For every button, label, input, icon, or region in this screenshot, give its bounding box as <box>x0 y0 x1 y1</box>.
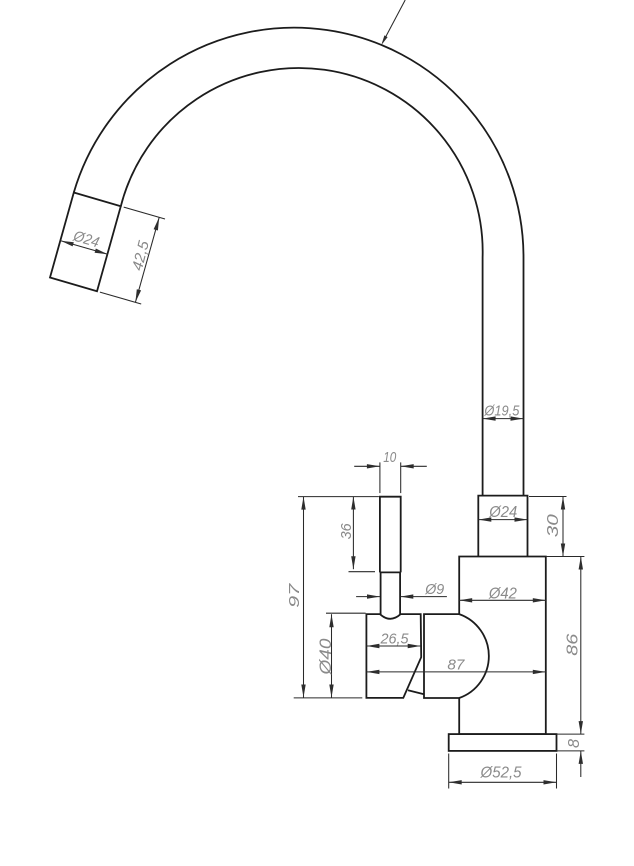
svg-text:Ø40: Ø40 <box>316 638 335 676</box>
svg-text:36: 36 <box>338 523 355 540</box>
svg-text:Ø42: Ø42 <box>488 585 517 602</box>
svg-text:87: 87 <box>447 657 465 674</box>
svg-text:86: 86 <box>564 634 581 656</box>
svg-text:26,5: 26,5 <box>380 631 410 648</box>
svg-text:Ø24: Ø24 <box>71 227 102 251</box>
svg-text:8: 8 <box>566 739 583 748</box>
svg-text:Ø24: Ø24 <box>488 504 517 521</box>
svg-text:Ø9: Ø9 <box>424 581 445 598</box>
svg-text:Ø19,5: Ø19,5 <box>484 402 520 419</box>
svg-text:10: 10 <box>383 449 397 466</box>
svg-text:97: 97 <box>286 583 303 608</box>
svg-text:Ø52,5: Ø52,5 <box>480 765 522 782</box>
svg-text:30: 30 <box>545 514 562 537</box>
svg-text:42,5: 42,5 <box>129 238 153 272</box>
